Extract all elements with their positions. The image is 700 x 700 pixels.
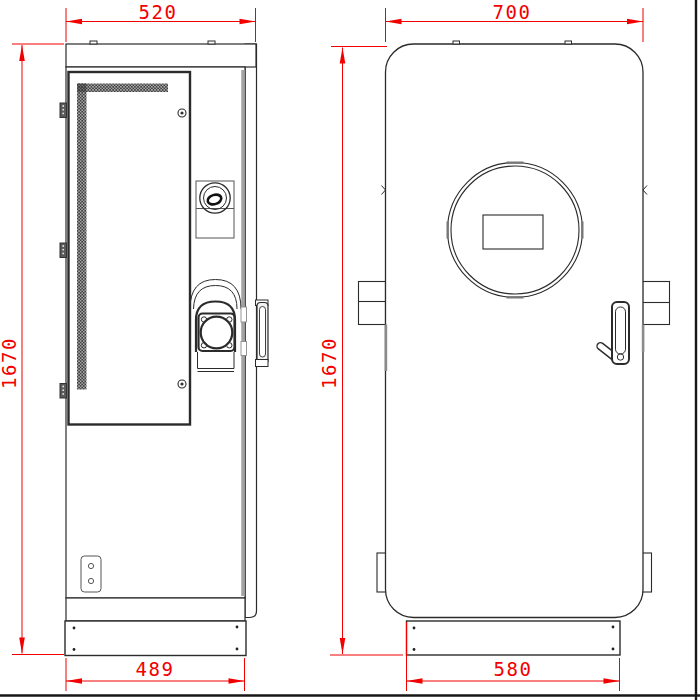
handle-side-profile <box>256 300 269 367</box>
lower-skirt <box>66 598 245 621</box>
latch-slot <box>241 307 247 322</box>
dim-label-front-height: 1670 <box>319 323 339 403</box>
front-view <box>359 41 670 655</box>
drawing-linework <box>0 0 700 700</box>
dim-label-front-base-width: 580 <box>483 659 543 679</box>
screw-dot <box>413 648 416 651</box>
socket-plate <box>199 314 235 352</box>
vent-perforation-left <box>77 84 87 390</box>
screw-dot <box>73 627 76 630</box>
top-tick <box>90 41 97 44</box>
latch-slot <box>241 342 247 356</box>
drawing-canvas: 520 700 1670 1670 489 580 <box>0 0 700 700</box>
side-base-plate <box>65 621 246 656</box>
vent-perforation-top <box>77 84 168 93</box>
screw-dot <box>612 626 615 629</box>
dim-label-side-height: 1670 <box>0 323 19 403</box>
screw-dot <box>236 648 239 651</box>
dim-label-side-top-width: 520 <box>128 2 188 22</box>
top-cap <box>66 44 256 67</box>
top-tick <box>565 41 572 44</box>
front-base-plate <box>407 621 621 655</box>
ventilated-service-door <box>69 72 191 425</box>
front-panel-edge <box>245 44 257 618</box>
top-tick <box>453 41 460 44</box>
dim-label-side-base-width: 489 <box>125 659 185 679</box>
screw-dot <box>413 627 416 630</box>
cable-gland-plate <box>81 556 101 592</box>
screw-dot <box>73 648 76 651</box>
cam-lock <box>196 181 234 238</box>
screw-dot <box>612 648 615 651</box>
front-cabinet-outline <box>386 44 644 618</box>
top-tick <box>208 41 215 44</box>
screw-dot <box>236 626 239 629</box>
dim-label-front-top-width: 700 <box>482 2 542 22</box>
side-view <box>60 41 268 656</box>
